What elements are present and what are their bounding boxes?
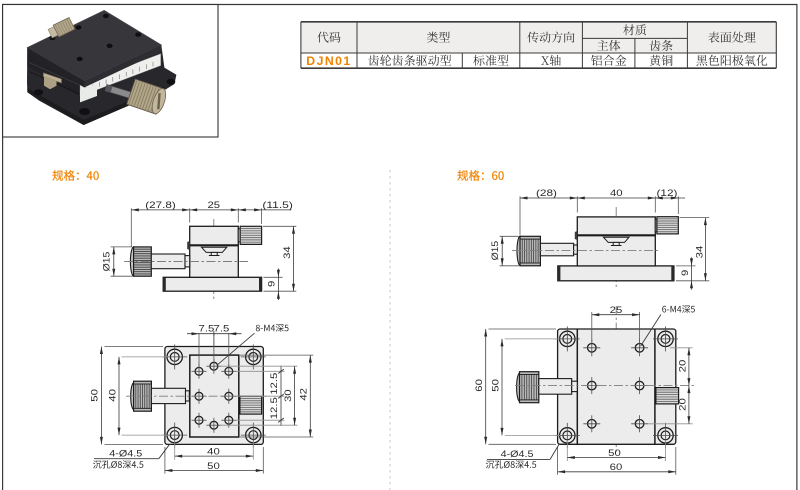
svg-text:34: 34 — [282, 246, 292, 259]
svg-text:9: 9 — [267, 281, 277, 287]
svg-text:60: 60 — [474, 379, 484, 392]
svg-text:7.5: 7.5 — [199, 324, 215, 334]
svg-text:40: 40 — [207, 447, 220, 457]
svg-text:(11.5): (11.5) — [262, 200, 293, 210]
svg-text:40: 40 — [107, 389, 117, 402]
svg-text:12.5: 12.5 — [269, 397, 279, 419]
svg-text:4-Ø4.5: 4-Ø4.5 — [501, 449, 534, 459]
svg-text:9: 9 — [680, 270, 690, 276]
svg-text:40: 40 — [610, 188, 623, 198]
svg-text:Ø15: Ø15 — [490, 241, 500, 261]
svg-text:7.5: 7.5 — [214, 324, 230, 334]
svg-text:50: 50 — [90, 389, 100, 402]
svg-text:(27.8): (27.8) — [145, 200, 176, 210]
svg-text:(28): (28) — [536, 188, 557, 198]
svg-text:34: 34 — [694, 246, 704, 259]
svg-text:50: 50 — [608, 448, 621, 458]
svg-text:Ø15: Ø15 — [101, 252, 111, 272]
svg-text:50: 50 — [207, 461, 220, 471]
svg-text:25: 25 — [208, 200, 221, 210]
svg-text:50: 50 — [490, 379, 500, 392]
svg-text:20: 20 — [677, 360, 687, 373]
svg-text:20: 20 — [677, 398, 687, 411]
svg-text:60: 60 — [610, 462, 623, 472]
svg-text:42: 42 — [299, 388, 309, 401]
svg-text:30: 30 — [283, 389, 293, 402]
svg-text:(12): (12) — [657, 188, 678, 198]
svg-text:4-Ø4.5: 4-Ø4.5 — [109, 448, 142, 458]
svg-text:25: 25 — [610, 305, 623, 315]
svg-text:DJN01: DJN01 — [306, 54, 351, 68]
svg-text:12.5: 12.5 — [269, 373, 279, 395]
